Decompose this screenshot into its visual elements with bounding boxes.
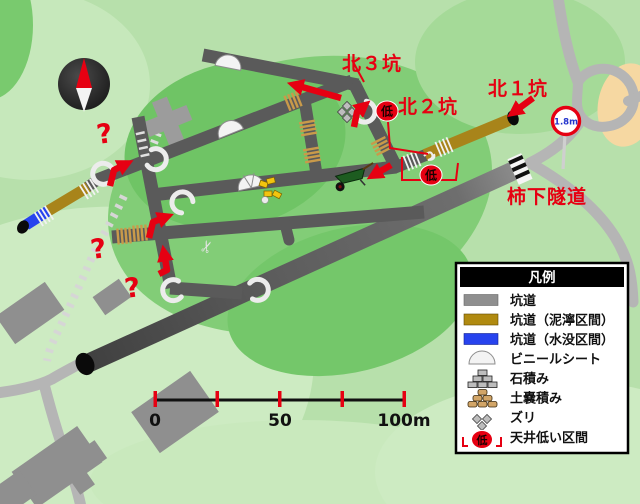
muddy-tunnel-swatch (464, 314, 498, 325)
label-kakishita: 柿下隧道 (507, 185, 587, 208)
label-north2: 北２坑 (398, 95, 458, 118)
legend: 凡例 坑道 坑道（泥濘区間） 坑道（水没区間） ビニールシート 石積み 土嚢積み (456, 263, 628, 453)
tunnel-swatch (464, 295, 498, 306)
map-canvas: ✂ 低 低 北３坑 北２坑 北１坑 柿下隧道 ? ? ? 1.8m (0, 0, 640, 504)
flooded-tunnel-swatch (464, 334, 498, 345)
mine-map: ✂ 低 低 北３坑 北２坑 北１坑 柿下隧道 ? ? ? 1.8m (0, 0, 640, 504)
low-badge-text: 低 (424, 168, 437, 183)
label-north3: 北３坑 (342, 52, 402, 75)
legend-item-label: 坑道（泥濘区間） (510, 313, 614, 329)
low-ceiling-badge: 低 (376, 101, 398, 121)
tunnel-stub (285, 224, 289, 240)
low-badge-text: 低 (380, 104, 393, 119)
scale-tick-50: 50 (268, 411, 292, 431)
road-right-branch (628, 95, 640, 101)
tunnel-row-d (170, 288, 242, 293)
label-north1: 北１坑 (488, 77, 548, 100)
legend-item-label: ビニールシート (510, 352, 601, 368)
legend-item-label: ズリ (510, 410, 536, 426)
low-ceiling-badge: 低 (420, 165, 442, 185)
legend-item-label: 土嚢積み (510, 391, 562, 407)
legend-item-label: 天井低い区間 (510, 430, 588, 446)
legend-item-label: 石積み (509, 371, 549, 387)
legend-item-label: 坑道 (510, 293, 536, 309)
legend-title: 凡例 (529, 269, 556, 286)
scale-tick-0: 0 (149, 411, 161, 431)
height-limit-text: 1.8m (554, 118, 578, 128)
scale-tick-100: 100m (377, 411, 430, 431)
legend-item-label: 坑道（水没区間） (510, 332, 614, 348)
low-badge-text: 低 (476, 433, 488, 447)
